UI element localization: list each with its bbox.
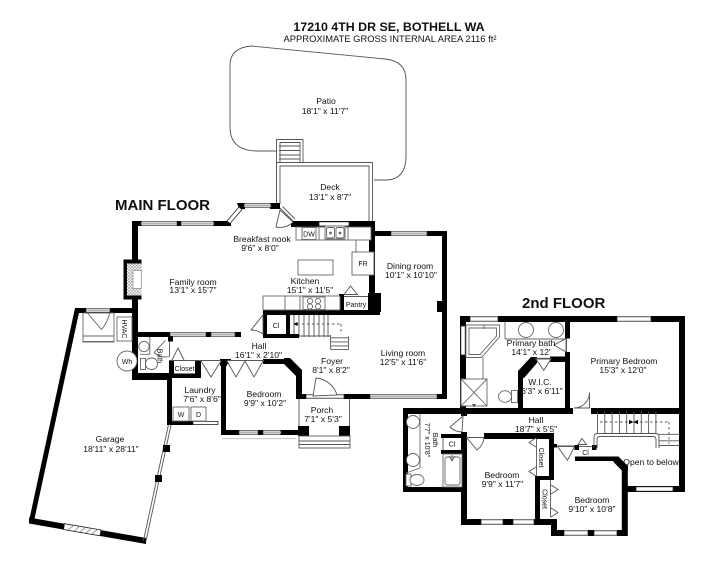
svg-text:Closet: Closet xyxy=(537,448,544,468)
svg-text:14'1" x 12': 14'1" x 12' xyxy=(511,347,551,357)
svg-text:18'7" x 5'5": 18'7" x 5'5" xyxy=(515,424,557,434)
svg-text:9'9" x 10'2": 9'9" x 10'2" xyxy=(244,398,286,408)
svg-text:Wh: Wh xyxy=(122,359,133,366)
svg-text:13'1" x 15'7": 13'1" x 15'7" xyxy=(169,285,216,295)
svg-text:W: W xyxy=(178,412,185,419)
svg-text:10'1" x 10'10": 10'1" x 10'10" xyxy=(385,270,437,280)
svg-text:15'1" x 11'5": 15'1" x 11'5" xyxy=(287,285,334,295)
svg-text:7'6" x 8'6": 7'6" x 8'6" xyxy=(183,394,221,404)
svg-text:6'3" x 6'11": 6'3" x 6'11" xyxy=(521,386,563,396)
svg-text:FR: FR xyxy=(358,261,367,268)
svg-text:Deck: Deck xyxy=(320,182,340,192)
svg-text:MAIN FLOOR: MAIN FLOOR xyxy=(115,197,210,214)
svg-text:2nd FLOOR: 2nd FLOOR xyxy=(522,295,605,312)
svg-text:9'9" x 11'7": 9'9" x 11'7" xyxy=(482,479,524,489)
svg-text:HVAC: HVAC xyxy=(120,320,127,339)
svg-text:Garage: Garage xyxy=(96,434,125,444)
svg-text:9'6" x 8'0": 9'6" x 8'0" xyxy=(241,243,279,253)
svg-text:Pantry: Pantry xyxy=(346,302,367,309)
svg-text:8'1" x 8'2": 8'1" x 8'2" xyxy=(312,365,350,375)
svg-text:13'1" x 8'7": 13'1" x 8'7" xyxy=(309,192,351,202)
svg-text:Bath: Bath xyxy=(431,433,438,448)
svg-text:7'1" x 5'3": 7'1" x 5'3" xyxy=(304,414,342,424)
svg-text:Closet: Closet xyxy=(175,366,195,373)
svg-text:Cl: Cl xyxy=(582,450,589,457)
svg-text:17210 4TH DR SE, BOTHELL WA: 17210 4TH DR SE, BOTHELL WA xyxy=(293,20,484,34)
svg-text:9'10" x 10'8": 9'10" x 10'8" xyxy=(568,504,615,514)
svg-text:16'1" x 2'10": 16'1" x 2'10" xyxy=(235,350,282,360)
svg-text:Open to below: Open to below xyxy=(623,457,679,467)
svg-text:Cl: Cl xyxy=(273,323,280,330)
svg-text:15'3" x 12'0": 15'3" x 12'0" xyxy=(599,365,646,375)
svg-text:Patio: Patio xyxy=(316,96,336,106)
svg-text:12'5" x 11'6": 12'5" x 11'6" xyxy=(380,357,427,367)
svg-text:D: D xyxy=(196,412,201,419)
svg-text:18'11" x 28'11": 18'11" x 28'11" xyxy=(83,444,138,454)
svg-text:APPROXIMATE GROSS INTERNAL ARE: APPROXIMATE GROSS INTERNAL AREA 2116 ft² xyxy=(284,33,497,44)
svg-text:7'7" x 10'8": 7'7" x 10'8" xyxy=(423,423,430,458)
svg-text:18'1" x 11'7": 18'1" x 11'7" xyxy=(302,106,349,116)
svg-text:Cl: Cl xyxy=(449,442,456,449)
svg-text:DW: DW xyxy=(303,232,315,239)
svg-text:Closet: Closet xyxy=(541,489,548,509)
